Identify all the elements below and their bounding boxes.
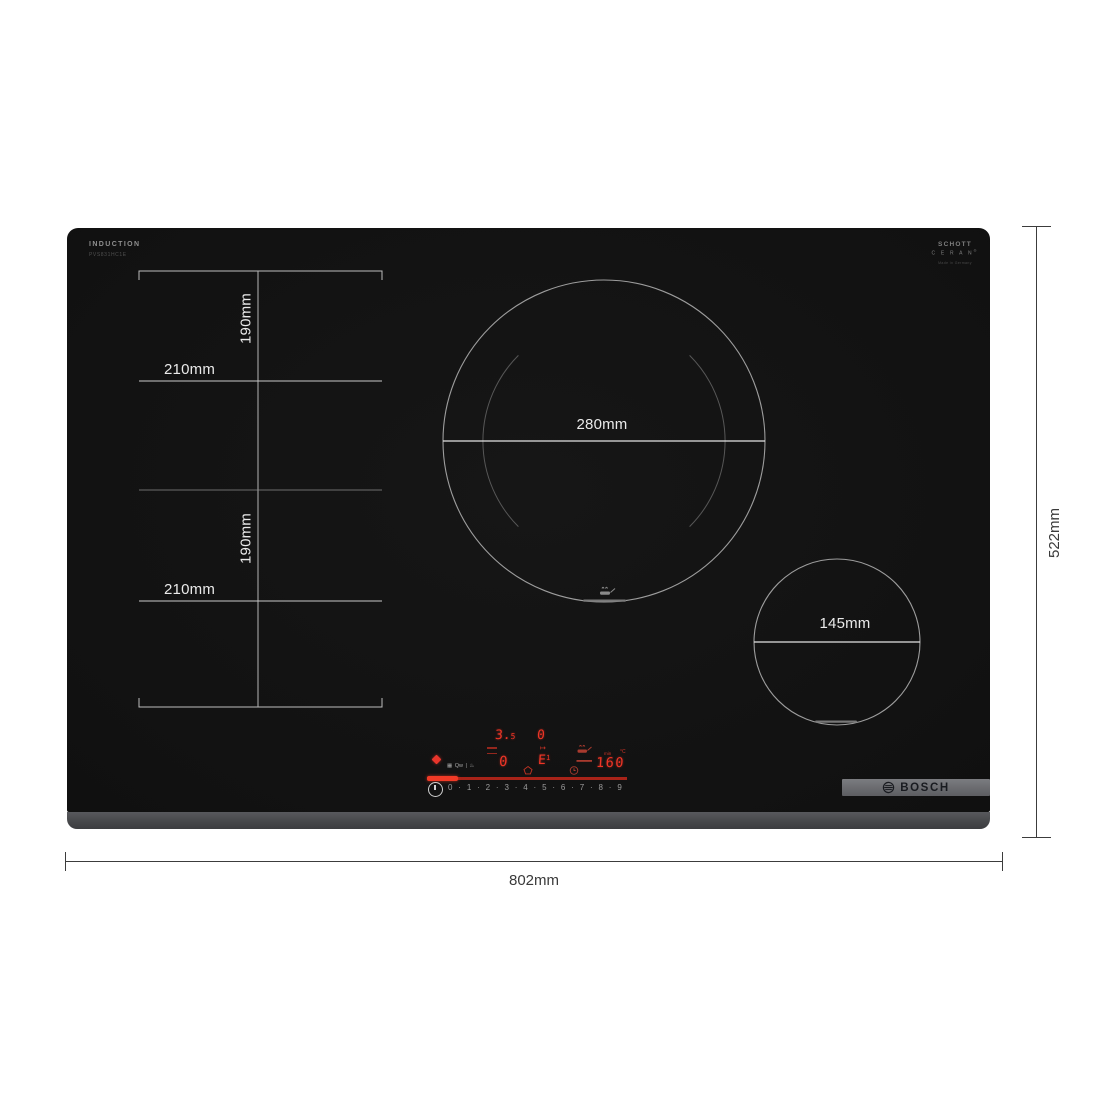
small-zone-pan-mark: [815, 721, 857, 723]
fry-level-display: E1: [538, 754, 551, 767]
power-level-mark[interactable]: ·: [571, 783, 574, 792]
power-level-mark[interactable]: 8: [599, 783, 603, 792]
bosch-badge: BOSCH: [842, 779, 990, 796]
glass-brand-line1: SCHOTT: [925, 241, 985, 249]
glass-brand-line3: Made in Germany: [925, 261, 985, 265]
fry-sensor-pan-icon: [578, 745, 592, 752]
power-button[interactable]: [428, 782, 443, 797]
power-level-scale[interactable]: 0·1·2·3·4·5·6·7·8·9: [448, 783, 622, 792]
zone-geometry: [67, 228, 990, 812]
large-zone-pan-icon: [600, 587, 615, 594]
quick-select-icon: ♨: [469, 764, 474, 770]
flex-zone1-height-label: 190mm: [238, 291, 255, 347]
power-level-mark[interactable]: ·: [552, 783, 555, 792]
zone-display: 0: [499, 755, 508, 769]
glass-brand-line2: C E R A N®: [925, 249, 985, 257]
quick-select-icons: ▦Qw|♨: [447, 764, 474, 770]
flex-zone1-width-label: 210mm: [164, 361, 215, 378]
quick-select-icon: |: [465, 764, 466, 770]
power-level-mark[interactable]: 1: [467, 783, 471, 792]
power-level-mark[interactable]: 0: [448, 783, 452, 792]
bosch-logo-text: BOSCH: [900, 782, 950, 794]
quick-select-icon: ▦: [447, 764, 452, 770]
fry-arrow-indicator: ↦: [540, 745, 546, 752]
power-level-mark[interactable]: ·: [496, 783, 499, 792]
power-move-indicator: [487, 747, 497, 758]
registered-mark: ®: [974, 249, 979, 253]
cooktop-front-trim: [67, 812, 990, 829]
large-zone-pan-mark: [583, 600, 626, 602]
power-level-mark[interactable]: 9: [617, 783, 621, 792]
power-level-display: 3.5: [495, 729, 516, 742]
glass-brand-print: SCHOTT C E R A N® Made in Germany: [925, 241, 985, 265]
flex-zone-bottom-bracket: [139, 698, 382, 707]
power-level-mark[interactable]: ·: [609, 783, 612, 792]
bosch-logo-icon: [882, 781, 895, 794]
large-zone-diameter-label: 280mm: [552, 416, 652, 433]
power-slider-active-segment[interactable]: [427, 776, 458, 781]
type-print-label: INDUCTION: [89, 241, 141, 248]
flex-zone2-width-label: 210mm: [164, 581, 215, 598]
power-level-mark[interactable]: ·: [515, 783, 518, 792]
power-level-mark[interactable]: ·: [534, 783, 537, 792]
cooktop-surface: INDUCTION PVS831HC1E SCHOTT C E R A N® M…: [67, 228, 990, 812]
power-level-mark[interactable]: 7: [580, 783, 584, 792]
power-level-mark[interactable]: 2: [486, 783, 490, 792]
power-level-mark[interactable]: ·: [590, 783, 593, 792]
height-dimension-line: [1036, 227, 1037, 838]
flex-zone-top-bracket: [139, 271, 382, 280]
power-level-mark[interactable]: 5: [542, 783, 546, 792]
timer-clock-icon: [570, 767, 578, 775]
power-level-mark[interactable]: ·: [477, 783, 480, 792]
height-dimension-label: 522mm: [1046, 493, 1062, 573]
power-level-mark[interactable]: 4: [523, 783, 527, 792]
width-dimension-line: [65, 861, 1003, 862]
height-dimension-tick-bottom: [1022, 837, 1051, 838]
small-zone-diameter-label: 145mm: [795, 615, 895, 632]
fry-sensor-underline: [577, 760, 593, 762]
move-pentagon-icon: [524, 767, 532, 774]
flex-zone2-height-label: 190mm: [238, 511, 255, 567]
power-button-line: [434, 785, 435, 790]
power-level-mark[interactable]: ·: [458, 783, 461, 792]
width-dimension-label: 802mm: [474, 872, 594, 889]
width-dimension-tick-right: [1002, 852, 1003, 871]
power-level-mark[interactable]: 6: [561, 783, 565, 792]
power-level-mark[interactable]: 3: [504, 783, 508, 792]
width-dimension-tick-left: [65, 852, 66, 871]
quick-select-icon: Qw: [455, 764, 463, 770]
product-dimension-diagram: INDUCTION PVS831HC1E SCHOTT C E R A N® M…: [0, 0, 1100, 1100]
height-dimension-tick-top: [1022, 226, 1051, 227]
temperature-display: 160: [596, 757, 626, 771]
model-print-label: PVS831HC1E: [89, 252, 127, 258]
aux-zone-display: 0: [537, 729, 546, 742]
